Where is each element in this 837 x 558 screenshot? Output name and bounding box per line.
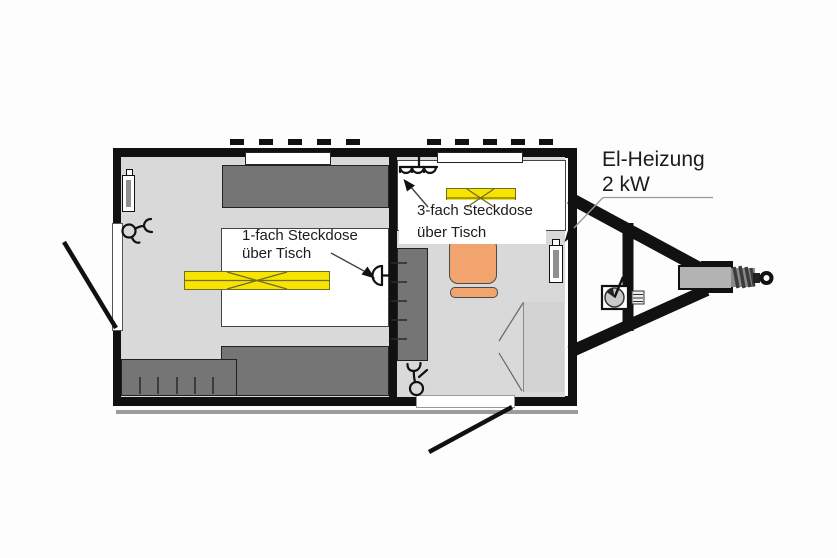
drawbar-top-bar [570,198,707,272]
door-swing-zone [523,302,564,392]
jockey-wheel-box [602,286,628,309]
roof-edge-dash [230,139,244,145]
worktop-counter [222,165,389,208]
heater-right-core [553,250,559,278]
jockey-wheel-disc [605,288,624,307]
cabinet-shelf [397,248,428,361]
jockey-wheel [602,277,644,309]
triple-socket-label-line2: über Tisch [417,224,486,241]
door-opening-bottom [416,395,515,408]
jockey-wheel-clamp [632,291,644,304]
heating-label-line2: 2 kW [602,173,650,197]
roof-edge-dash [288,139,302,145]
bellows-rib [751,268,754,286]
drawbar-frame [570,198,733,352]
roof-edge-dash [317,139,331,145]
jockey-wheel-hub [607,288,615,297]
trailer-floor-plan: 1-fach Steckdose über Tisch 3-fach Steck… [0,0,837,558]
bellows-rib [734,267,738,288]
roof-edge-dash [259,139,273,145]
heater-left-core [126,180,131,207]
tow-eye-ring [762,273,772,283]
chair-seat [450,287,498,298]
window-left-room [245,152,331,165]
roof-edge-dash [539,139,553,145]
triple-socket-label-line1: 3-fach Steckdose [417,202,533,219]
chair-backrest [449,238,497,284]
door-opening-left [112,223,123,331]
roof-edge-dash [346,139,360,145]
door-leaf-left [64,242,116,328]
roof-edge-dash [483,139,497,145]
single-socket-label-line1: 1-fach Steckdose [242,227,358,244]
heating-leader [565,198,714,243]
heating-label-line1: El-Heizung [602,148,705,172]
drawbar-bottom-bar [570,290,707,352]
coupling-neck [753,273,760,283]
bellows-rib [740,266,744,288]
trailer-shadow [116,410,578,414]
roof-edge-dash [511,139,525,145]
bench-bottom-right [221,346,389,396]
bench-bottom-left [121,359,237,396]
partition-wall [389,148,397,406]
coupling-body [679,266,732,289]
leader-line [574,198,603,229]
coupling-bellows [731,268,755,287]
bellows-rib [746,267,750,287]
window-right-room [437,152,523,163]
coupling-assembly [679,266,772,289]
roof-edge-dash [427,139,441,145]
drawbar-head-block [701,261,733,293]
single-socket-label-line2: über Tisch [242,245,311,262]
jockey-wheel-crank [615,277,624,298]
fluorescent-lamp-left [184,271,330,290]
roof-edge-dash [455,139,469,145]
